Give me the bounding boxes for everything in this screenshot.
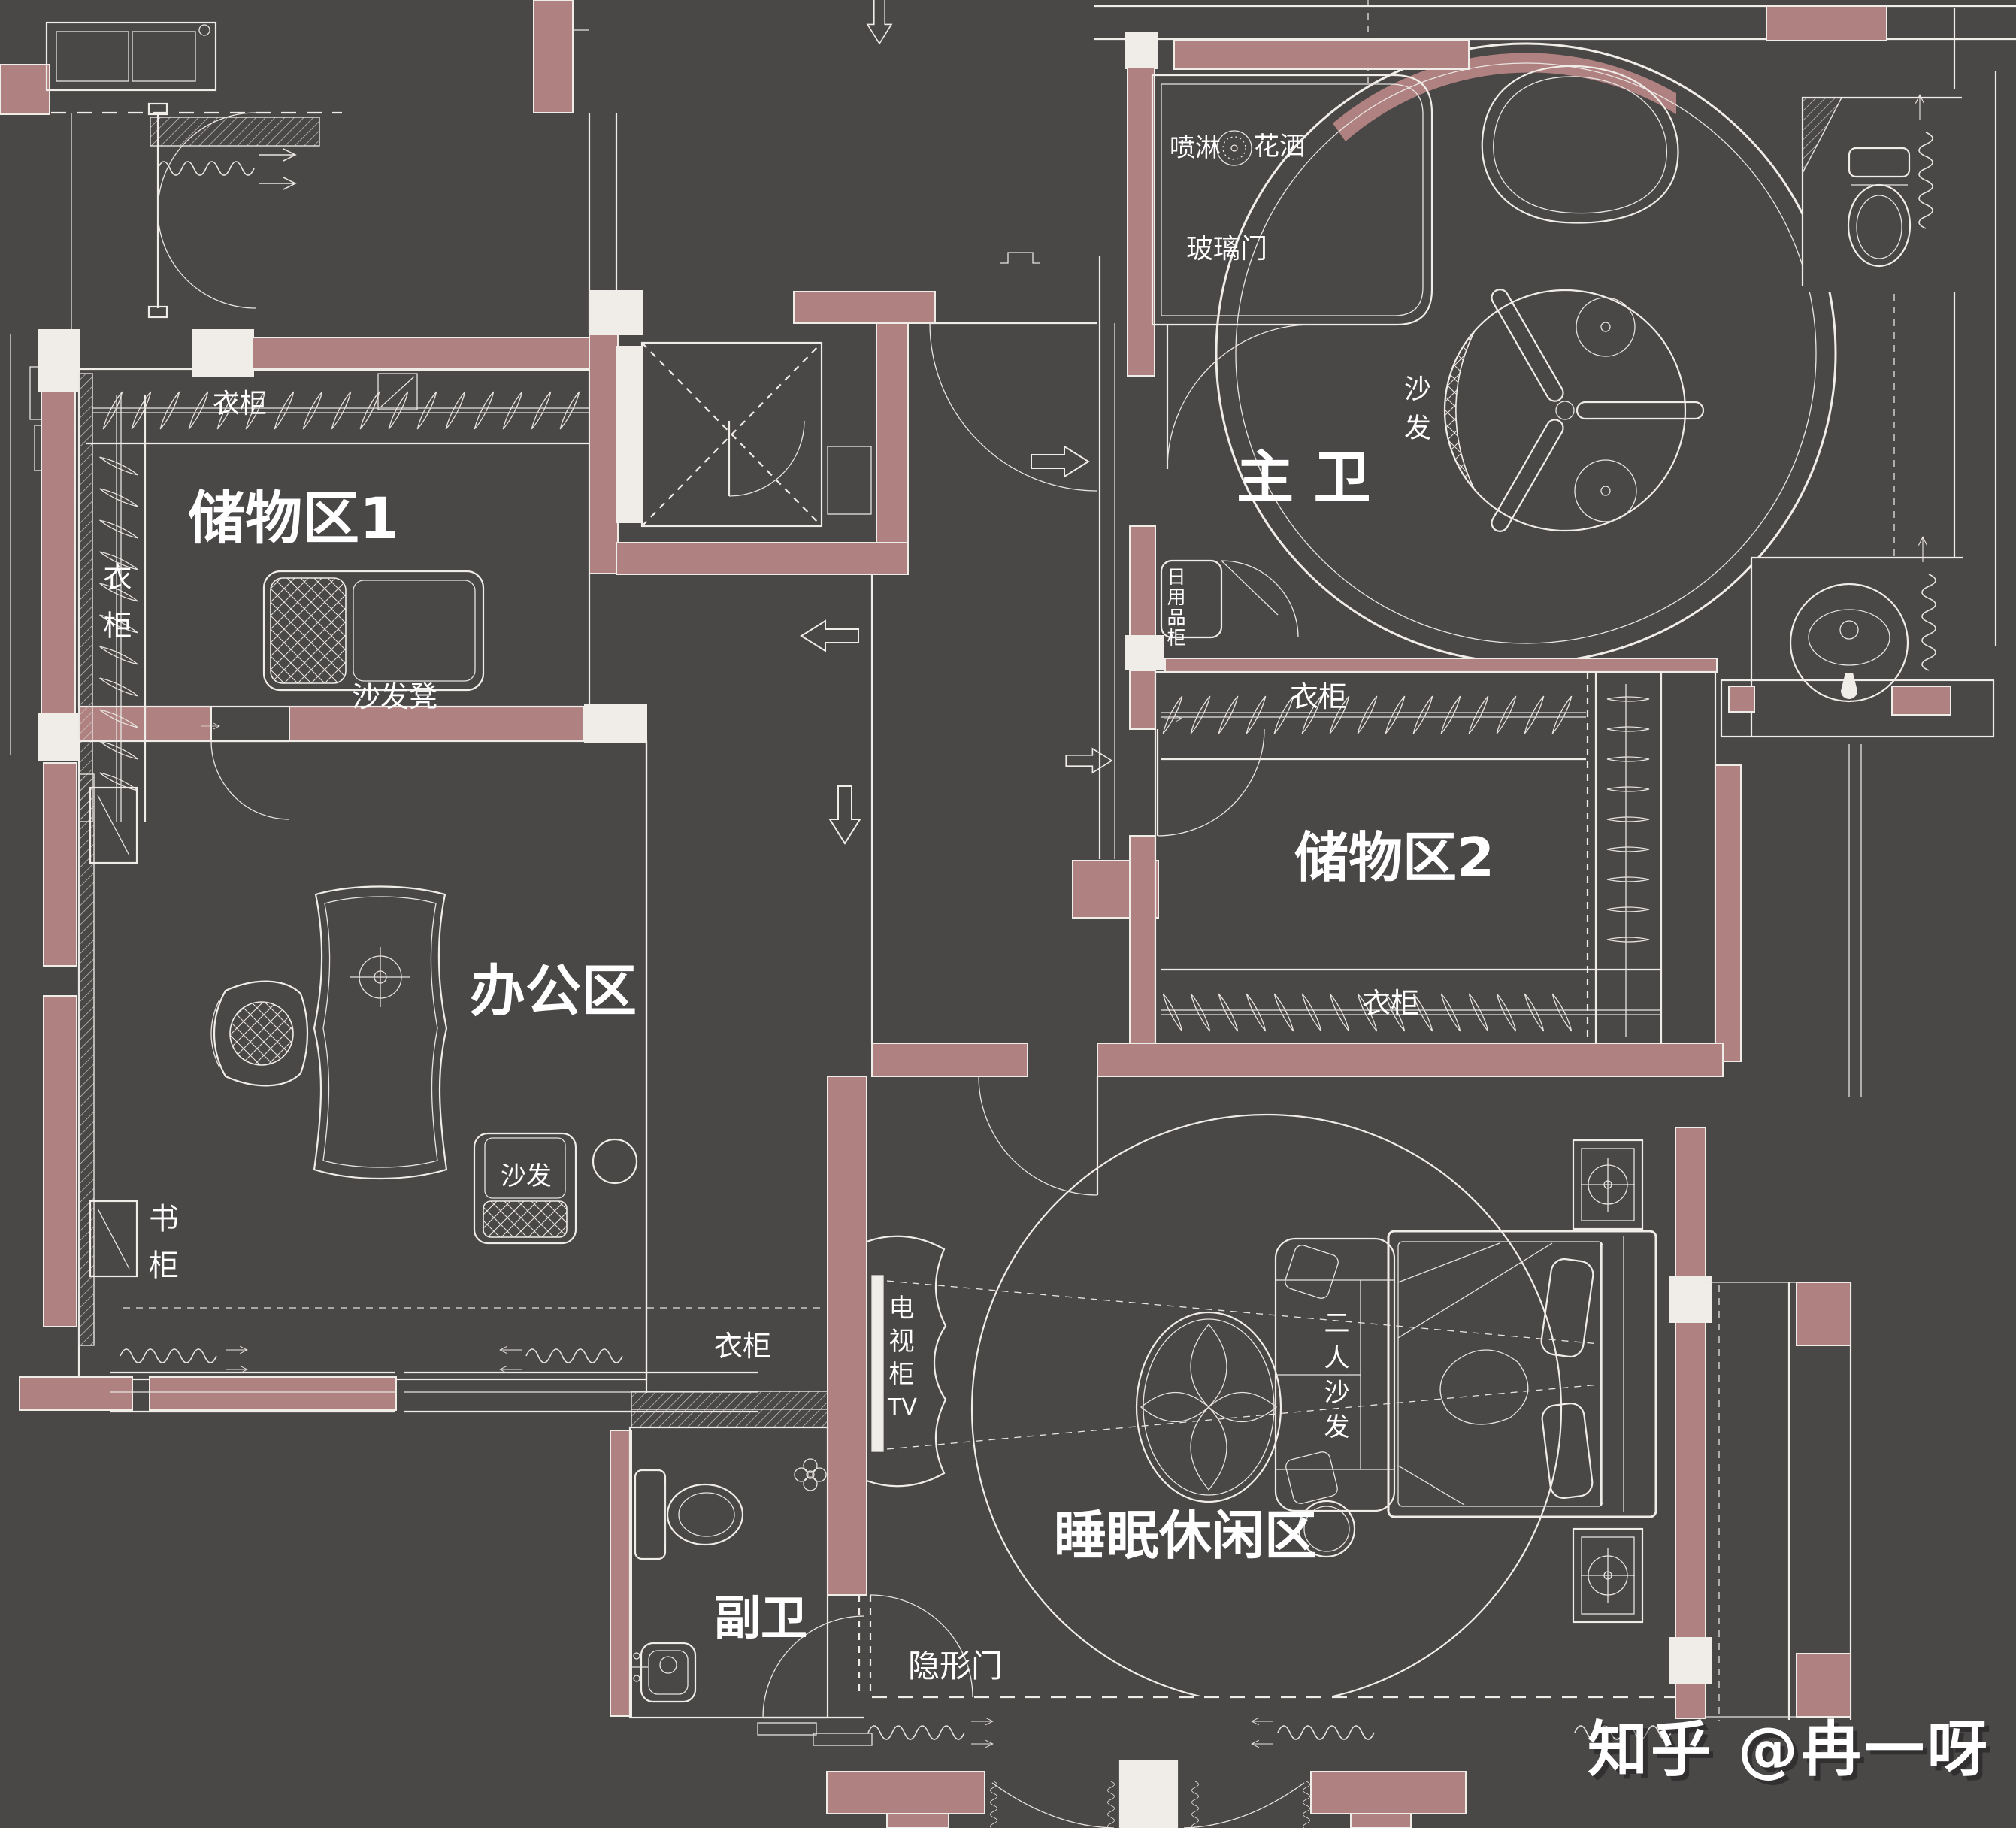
room-label-sub-bath: 副卫	[714, 1595, 807, 1642]
label-wardrobe-s1-top: 衣柜	[213, 391, 267, 418]
office-room	[20, 741, 823, 1412]
sofa-stool	[264, 571, 483, 690]
wall-sconce	[795, 1459, 826, 1491]
watermark: 知乎 @冉一呀	[1588, 1720, 1990, 1780]
floor-plan-drawing	[0, 0, 2016, 1828]
label-wardrobe-s1-left: 衣柜	[101, 562, 129, 658]
desk	[314, 887, 446, 1179]
room-label-storage1: 储物区1	[188, 490, 399, 547]
room-label-sleep: 睡眠休闲区	[1054, 1509, 1317, 1562]
label-shower-spray: 喷淋	[1170, 135, 1221, 161]
sub-basin	[631, 1643, 695, 1702]
label-wardrobe-corridor: 衣柜	[714, 1332, 771, 1360]
floor-plan: 储物区1 主 卫 办公区 储物区2 睡眠休闲区 副卫 衣柜 衣柜 沙发凳 喷淋 …	[0, 0, 2016, 1828]
label-hidden-door: 隐形门	[908, 1651, 1003, 1682]
label-office-sofa: 沙发	[501, 1164, 552, 1189]
bed	[1388, 1231, 1656, 1517]
nightstand-bottom	[1573, 1529, 1642, 1622]
room-label-office: 办公区	[470, 964, 637, 1019]
room-label-master-bath: 主 卫	[1237, 449, 1370, 507]
label-tv-cabinet: 电视柜	[886, 1294, 912, 1394]
label-tv: TV	[888, 1397, 917, 1419]
round-sofa	[1445, 286, 1703, 534]
oval-table	[1137, 1312, 1281, 1502]
label-wardrobe-s2-bottom: 衣柜	[1362, 989, 1419, 1018]
label-glass-door: 玻璃门	[1186, 236, 1267, 263]
sub-toilet	[635, 1470, 743, 1559]
office-chair	[211, 982, 307, 1086]
side-table	[593, 1139, 637, 1183]
elevator	[589, 290, 935, 1043]
label-shower-head: 花洒	[1254, 134, 1305, 159]
label-two-seat-sofa: 二人沙发	[1321, 1309, 1347, 1448]
label-wardrobe-s2-top: 衣柜	[1290, 682, 1347, 711]
label-bookcase: 书柜	[146, 1203, 176, 1296]
room-label-storage2: 储物区2	[1294, 831, 1494, 885]
hallway	[801, 0, 1164, 1195]
nightstand-top	[1573, 1140, 1642, 1229]
label-daily-goods-cabinet: 日用品柜	[1166, 567, 1185, 648]
label-sofa-stool: 沙发凳	[352, 682, 437, 711]
master-bath	[1152, 6, 1993, 738]
label-bath-sofa: 沙发	[1401, 374, 1428, 452]
